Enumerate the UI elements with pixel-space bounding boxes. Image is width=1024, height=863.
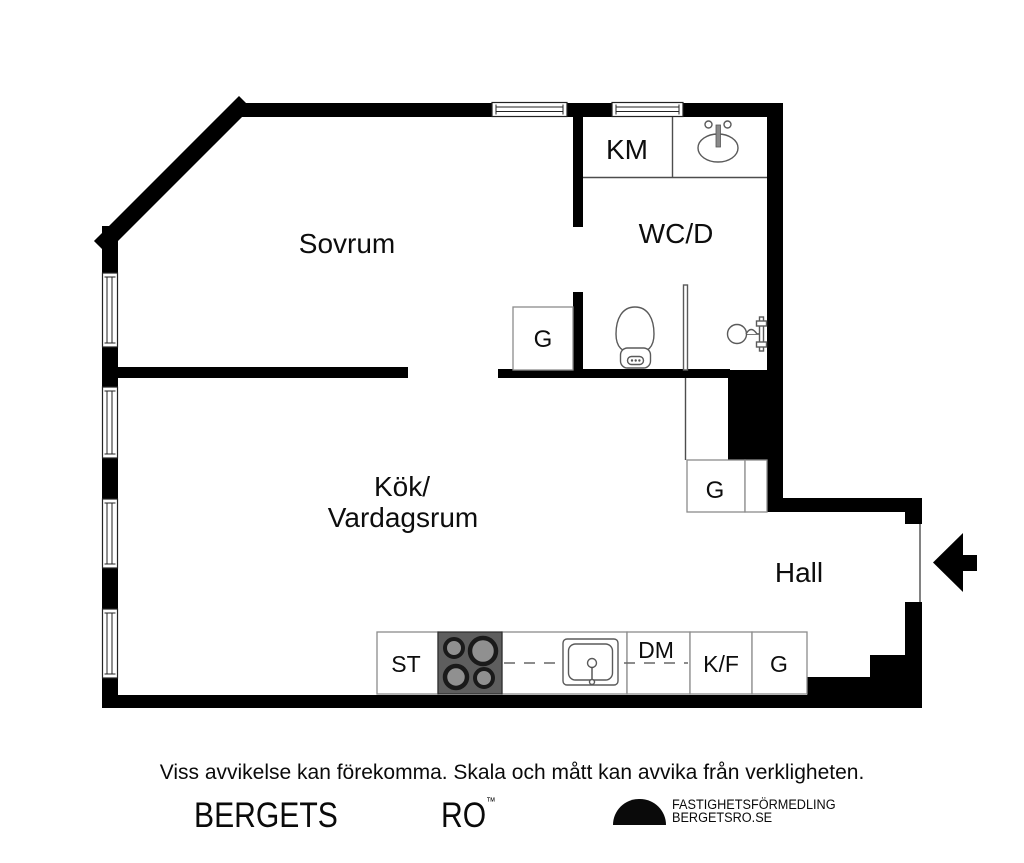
kitchen-sink-icon [563, 639, 618, 685]
wall-sovrum-kok [118, 367, 408, 378]
kitchen-counter [377, 632, 807, 694]
brand-wordmark-bergets: BERGETS [194, 796, 338, 836]
wall-bottom-left [102, 695, 807, 708]
toilet-icon [616, 307, 654, 368]
room-label-kok-line2: Vardagsrum [328, 502, 478, 533]
shower-mixer-icon [728, 317, 767, 351]
window-icon [612, 103, 683, 117]
window-icon [492, 103, 567, 117]
wall-hall-top [767, 498, 922, 512]
floor-plan-page: Sovrum KM WC/D Kök/ Vardagsrum Hall G G … [0, 0, 1024, 863]
wall-sovrum-km [573, 115, 583, 227]
cooktop-icon [438, 632, 502, 694]
shower-screen [684, 285, 688, 370]
disclaimer-text: Viss avvikelse kan förekomma. Skala och … [0, 761, 1024, 785]
room-label-wcd: WC/D [639, 218, 714, 249]
closet-hall-narrow [745, 460, 767, 512]
wall-right-above-door [905, 512, 922, 524]
windows [103, 103, 684, 679]
room-label-hall: Hall [775, 557, 823, 588]
window-icon [103, 273, 118, 347]
brand-ro-text: RO [441, 796, 486, 835]
kitchen-label-g: G [770, 651, 788, 677]
wall-diagonal [106, 108, 239, 241]
room-label-sovrum: Sovrum [299, 228, 395, 259]
room-label-km: KM [606, 134, 648, 165]
wall-right-below-door [905, 602, 922, 679]
kitchen-label-kf: K/F [703, 651, 739, 677]
floor-plan-drawing: Sovrum KM WC/D Kök/ Vardagsrum Hall G G … [0, 0, 1024, 863]
kitchen-label-st: ST [391, 651, 420, 677]
room-label-kok-line1: Kök/ [374, 471, 430, 502]
kitchen-label-dm: DM [638, 637, 674, 663]
bathroom-sink-icon [698, 121, 738, 162]
closet-label-bedroom-g: G [534, 326, 553, 353]
duct-block [728, 370, 783, 462]
closet-label-hall-g: G [706, 477, 725, 504]
wall-bottom-right [807, 677, 922, 708]
entrance-arrow-icon [933, 533, 977, 592]
trademark-symbol: ™ [486, 796, 495, 808]
brand-wordmark-ro: RO™ [441, 796, 496, 836]
window-icon [103, 499, 118, 568]
window-icon [103, 387, 118, 458]
window-icon [103, 609, 118, 678]
exterior-walls [102, 103, 922, 708]
wall-sovrum-wcd [573, 292, 583, 378]
agency-line2: BERGETSRO.SE [672, 811, 836, 824]
agency-text: FASTIGHETSFÖRMEDLING BERGETSRO.SE [672, 798, 836, 824]
